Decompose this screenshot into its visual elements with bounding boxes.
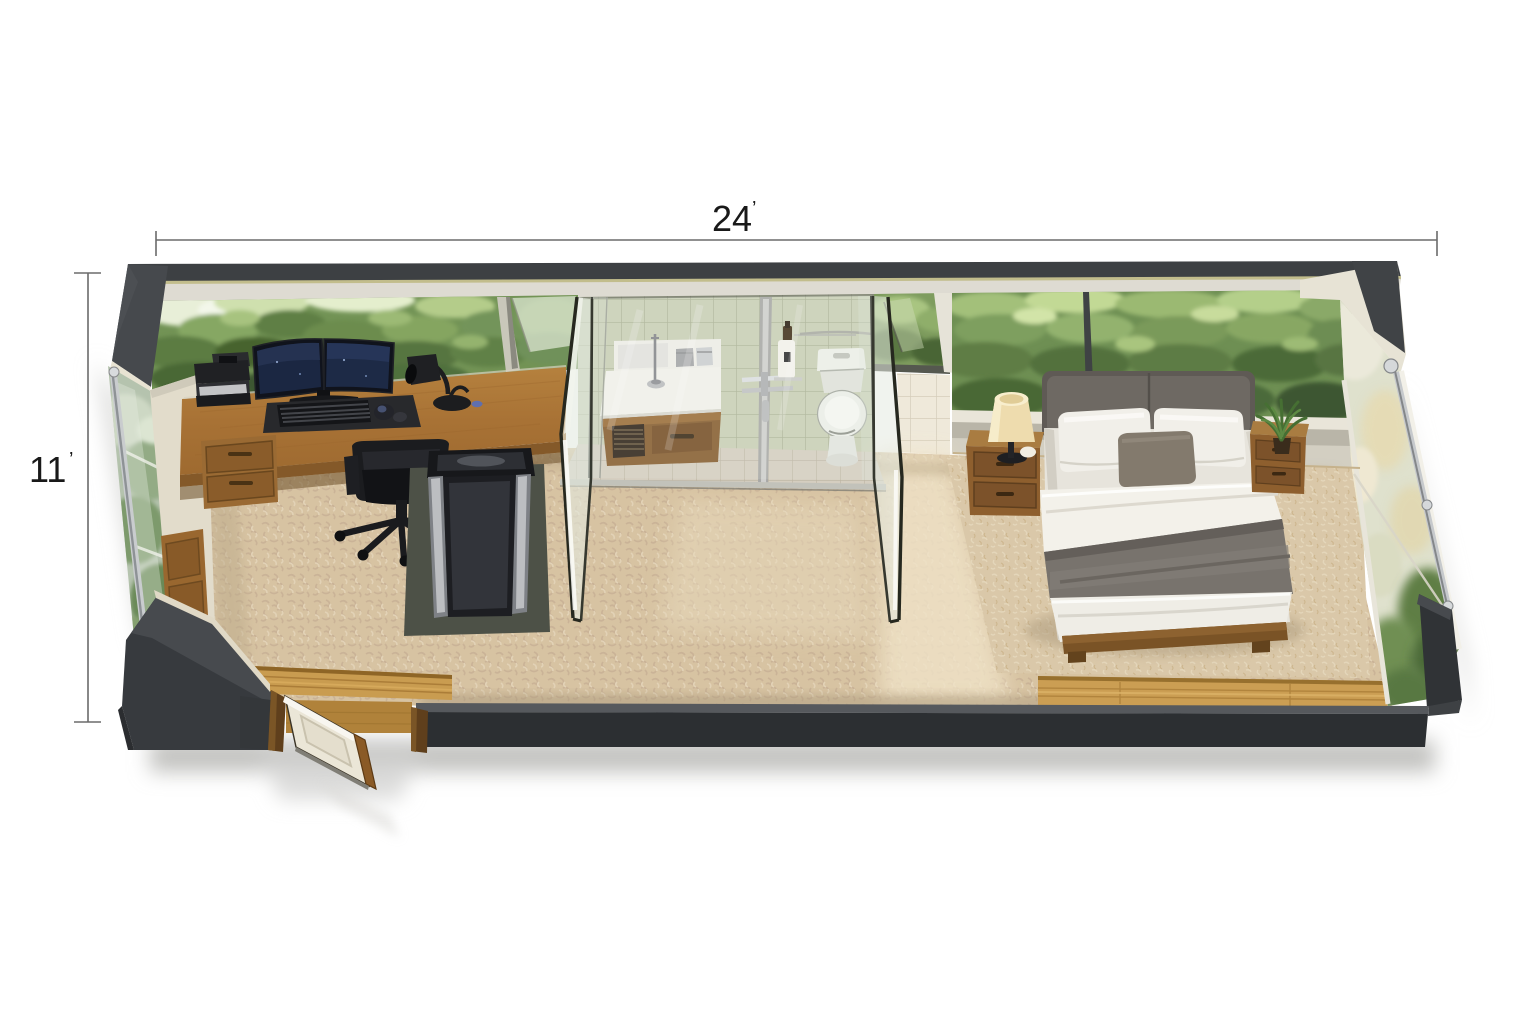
svg-text:’: ’ xyxy=(752,198,756,220)
svg-text:11: 11 xyxy=(29,449,66,490)
svg-text:’: ’ xyxy=(69,449,73,471)
svg-text:24: 24 xyxy=(712,198,752,239)
